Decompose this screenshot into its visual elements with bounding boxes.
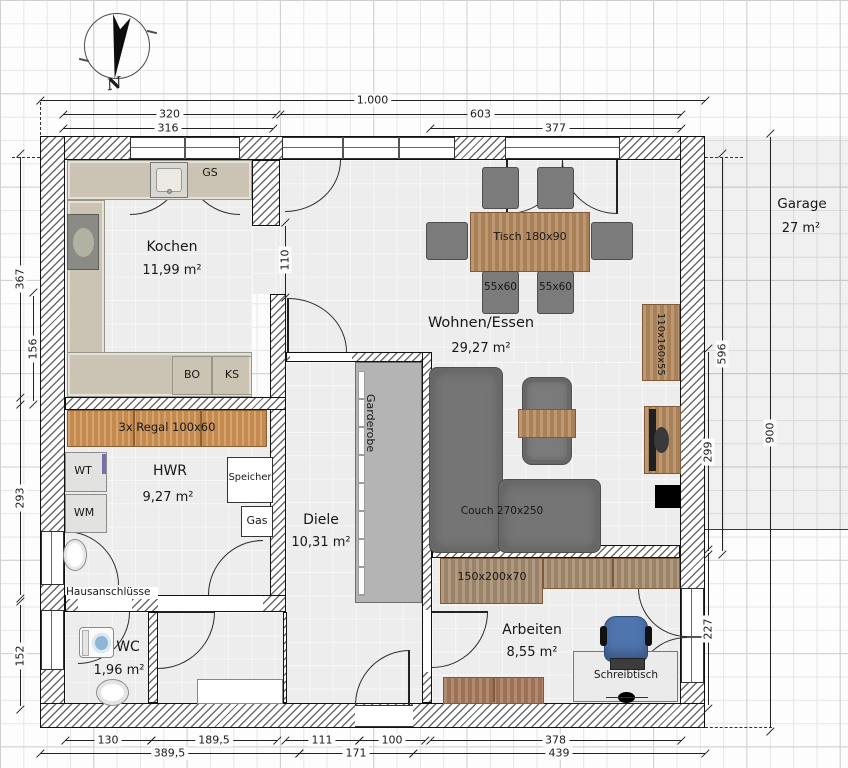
office-wardrobe-label: 150x200x70 xyxy=(447,571,537,583)
room-area-wohnen: 29,27 m² xyxy=(446,341,516,356)
dim-110[interactable]: 110 xyxy=(285,226,286,294)
room-area-hwr: 9,27 m² xyxy=(138,490,198,505)
room-label-diele[interactable]: Diele xyxy=(291,512,351,528)
room-label-wohnen[interactable]: Wohnen/Essen xyxy=(426,315,536,331)
office-chair-armrest-right xyxy=(645,626,652,646)
gas-label: Gas xyxy=(243,515,271,527)
chair-top-2[interactable] xyxy=(537,167,574,209)
tv-foot xyxy=(654,427,669,453)
dim-111[interactable]: 111 xyxy=(285,740,359,741)
opening-front-door xyxy=(355,705,413,727)
terrace-door[interactable] xyxy=(505,137,620,159)
dim-227[interactable]: 227 xyxy=(708,553,709,705)
dim-389[interactable]: 389,5 xyxy=(40,753,299,754)
hwr-sink[interactable] xyxy=(63,539,87,571)
sink-faucet xyxy=(167,189,172,194)
washbasin-unit-accent xyxy=(102,454,106,474)
washbasin-unit-label: WT xyxy=(68,465,98,477)
witness-line-top-left xyxy=(40,102,41,135)
window-wohnen[interactable] xyxy=(282,137,455,159)
dim-378[interactable]: 378 xyxy=(430,740,681,741)
dim-189[interactable]: 189,5 xyxy=(151,740,277,741)
room-label-wc[interactable]: WC xyxy=(112,639,144,655)
couch-label: Couch 270x250 xyxy=(446,506,558,518)
couch-section-vertical[interactable] xyxy=(429,367,503,553)
oven-label: BO xyxy=(174,369,210,381)
floor-plan-canvas: GS BO KS 3x Regal 100x60 WT WM Speicher … xyxy=(0,0,848,768)
window-wc[interactable] xyxy=(41,610,64,670)
office-chair[interactable] xyxy=(604,616,648,662)
compass-rose[interactable] xyxy=(84,13,150,79)
dim-293[interactable]: 293 xyxy=(20,401,21,595)
office-chair-armrest-left xyxy=(600,626,607,646)
washing-machine-label: WM xyxy=(68,507,100,519)
desk-label: Schreibtisch xyxy=(591,670,661,682)
dim-130[interactable]: 130 xyxy=(65,740,151,741)
window-wohnen-mullion-2 xyxy=(398,137,400,159)
kitchen-cooktop[interactable] xyxy=(67,214,99,270)
storage-cabinet[interactable] xyxy=(197,679,283,704)
sideboard[interactable]: 110x160x55 xyxy=(642,304,680,381)
dim-299[interactable]: 299 xyxy=(708,352,709,551)
wc-basin[interactable] xyxy=(96,679,129,706)
office-shelf-bottom-divider xyxy=(493,678,495,702)
dim-439[interactable]: 439 xyxy=(413,753,705,754)
garage-boundary-line xyxy=(705,529,848,530)
hwr-shelf-label: 3x Regal 100x60 xyxy=(87,421,247,434)
dim-316[interactable]: 316 xyxy=(63,128,273,129)
room-label-hwr[interactable]: HWR xyxy=(140,463,200,479)
opening-arbeiten-door xyxy=(423,610,431,672)
toilet[interactable] xyxy=(79,627,114,658)
dim-377[interactable]: 377 xyxy=(430,128,681,129)
wall-storage-diele[interactable] xyxy=(283,612,287,703)
dim-total-width[interactable]: 1.000 xyxy=(40,100,705,101)
chair-left[interactable] xyxy=(426,222,468,260)
dim-152[interactable]: 152 xyxy=(20,605,21,706)
witness-line-right-corner xyxy=(705,157,743,158)
dim-367[interactable]: 367 xyxy=(20,157,21,401)
chair-right[interactable] xyxy=(591,222,633,260)
room-area-garage: 27 m² xyxy=(776,221,826,236)
cooktop-burner xyxy=(73,228,94,257)
wall-wc-right[interactable] xyxy=(148,612,158,703)
toilet-tank xyxy=(82,630,89,656)
opening-diele-door xyxy=(290,353,352,361)
coffee-table[interactable] xyxy=(518,409,576,438)
compass-tick-west xyxy=(79,58,89,62)
wall-hwr-diele[interactable] xyxy=(270,294,286,612)
wardrobe-garderobe[interactable]: Garderobe xyxy=(355,362,422,603)
window-wohnen-mullion-1 xyxy=(342,137,344,159)
dim-156[interactable]: 156 xyxy=(33,296,34,401)
dim-900[interactable]: 900 xyxy=(770,137,771,728)
witness-line-left-corner xyxy=(12,157,40,158)
dining-table-label: Tisch 180x90 xyxy=(480,231,580,243)
tv-stand[interactable] xyxy=(644,406,681,474)
room-label-kochen[interactable]: Kochen xyxy=(122,239,222,255)
compass-north-label: N xyxy=(105,73,123,95)
window-kochen-mullion xyxy=(184,137,186,159)
dim-603[interactable]: 603 xyxy=(280,114,681,115)
hausanschluesse-label: Hausanschlüsse xyxy=(66,587,158,599)
opening-storage-door xyxy=(158,596,263,611)
compass-needle-icon xyxy=(100,14,136,81)
fridge-label: KS xyxy=(214,369,250,381)
dim-171[interactable]: 171 xyxy=(299,753,413,754)
wall-kochen-wohnen[interactable] xyxy=(252,160,280,226)
chair-label-2: 55x60 xyxy=(538,282,573,294)
room-label-garage[interactable]: Garage xyxy=(772,196,832,212)
room-label-arbeiten[interactable]: Arbeiten xyxy=(500,622,564,638)
boiler-label: Speicher xyxy=(226,473,274,484)
dim-596[interactable]: 596 xyxy=(722,157,723,551)
room-area-kochen: 11,99 m² xyxy=(122,263,222,278)
chair-top-1[interactable] xyxy=(482,167,519,209)
dim-320[interactable]: 320 xyxy=(63,114,276,115)
mouse-pad-line xyxy=(606,697,648,698)
room-area-arbeiten: 8,55 m² xyxy=(502,645,562,660)
office-shelf-top-divider xyxy=(612,559,614,587)
dim-100[interactable]: 100 xyxy=(359,740,425,741)
dishwasher-label: GS xyxy=(192,167,228,179)
chair-label-1: 55x60 xyxy=(483,282,518,294)
witness-line-garage-bottom xyxy=(700,727,772,728)
window-hwr[interactable] xyxy=(41,531,64,585)
kitchen-sink[interactable] xyxy=(150,162,188,198)
toilet-bowl xyxy=(92,633,111,653)
wall-kochen-hwr[interactable] xyxy=(65,397,286,410)
room-area-diele: 10,31 m² xyxy=(288,535,354,550)
room-area-wc: 1,96 m² xyxy=(90,663,148,678)
garderobe-label: Garderobe xyxy=(364,368,376,478)
speaker-box[interactable] xyxy=(655,485,681,508)
sideboard-label: 110x160x55 xyxy=(655,308,666,380)
compass-tick-east xyxy=(147,30,157,34)
